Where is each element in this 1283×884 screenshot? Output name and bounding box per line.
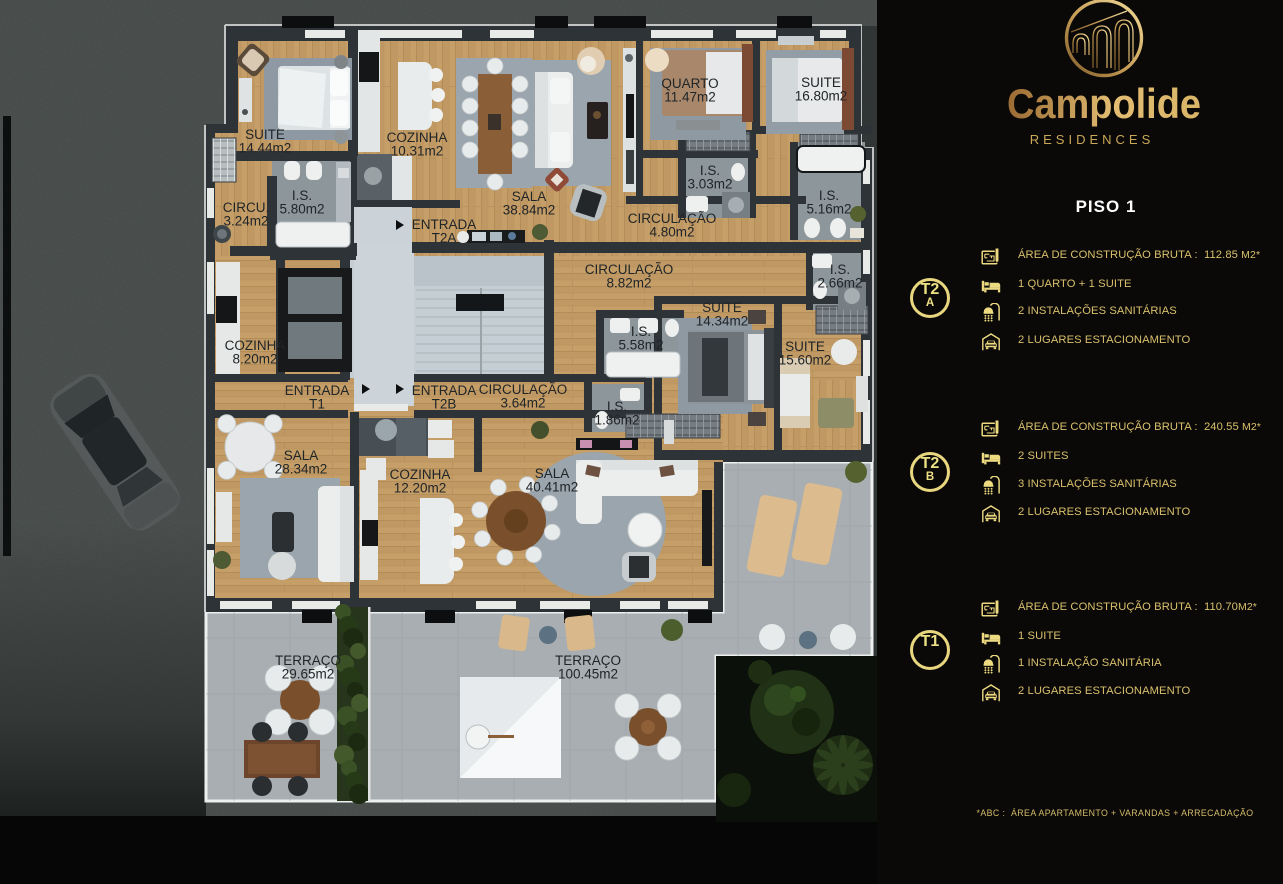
svg-text:T2B: T2B xyxy=(432,397,457,412)
svg-text:38.84m2: 38.84m2 xyxy=(503,203,556,218)
svg-text:5.16m2: 5.16m2 xyxy=(806,202,851,217)
svg-text:14.34m2: 14.34m2 xyxy=(696,314,749,329)
svg-text:3.03m2: 3.03m2 xyxy=(687,177,732,192)
svg-text:12.20m2: 12.20m2 xyxy=(394,481,447,496)
svg-text:T1: T1 xyxy=(309,397,325,412)
svg-text:11.47m2: 11.47m2 xyxy=(664,90,716,105)
svg-text:5.80m2: 5.80m2 xyxy=(279,202,324,217)
svg-text:40.41m2: 40.41m2 xyxy=(526,480,579,495)
svg-text:28.34m2: 28.34m2 xyxy=(275,462,328,477)
svg-text:29.65m2: 29.65m2 xyxy=(282,667,335,682)
svg-text:14.44m2: 14.44m2 xyxy=(239,141,292,156)
svg-text:1.86m2: 1.86m2 xyxy=(594,413,639,428)
svg-text:3.24m2: 3.24m2 xyxy=(223,214,268,229)
svg-text:10.31m2: 10.31m2 xyxy=(391,144,444,159)
svg-text:100.45m2: 100.45m2 xyxy=(558,667,618,682)
svg-text:3.64m2: 3.64m2 xyxy=(500,396,545,411)
svg-text:8.82m2: 8.82m2 xyxy=(606,276,651,291)
svg-text:16.80m2: 16.80m2 xyxy=(795,89,848,104)
svg-text:8.20m2: 8.20m2 xyxy=(232,352,277,367)
svg-text:T2A: T2A xyxy=(432,231,457,246)
svg-text:15.60m2: 15.60m2 xyxy=(779,353,832,368)
svg-text:4.80m2: 4.80m2 xyxy=(649,225,694,240)
svg-text:5.58m2: 5.58m2 xyxy=(618,338,663,353)
svg-text:2.66m2: 2.66m2 xyxy=(817,276,862,291)
svg-text:Campolide: Campolide xyxy=(1007,80,1201,127)
